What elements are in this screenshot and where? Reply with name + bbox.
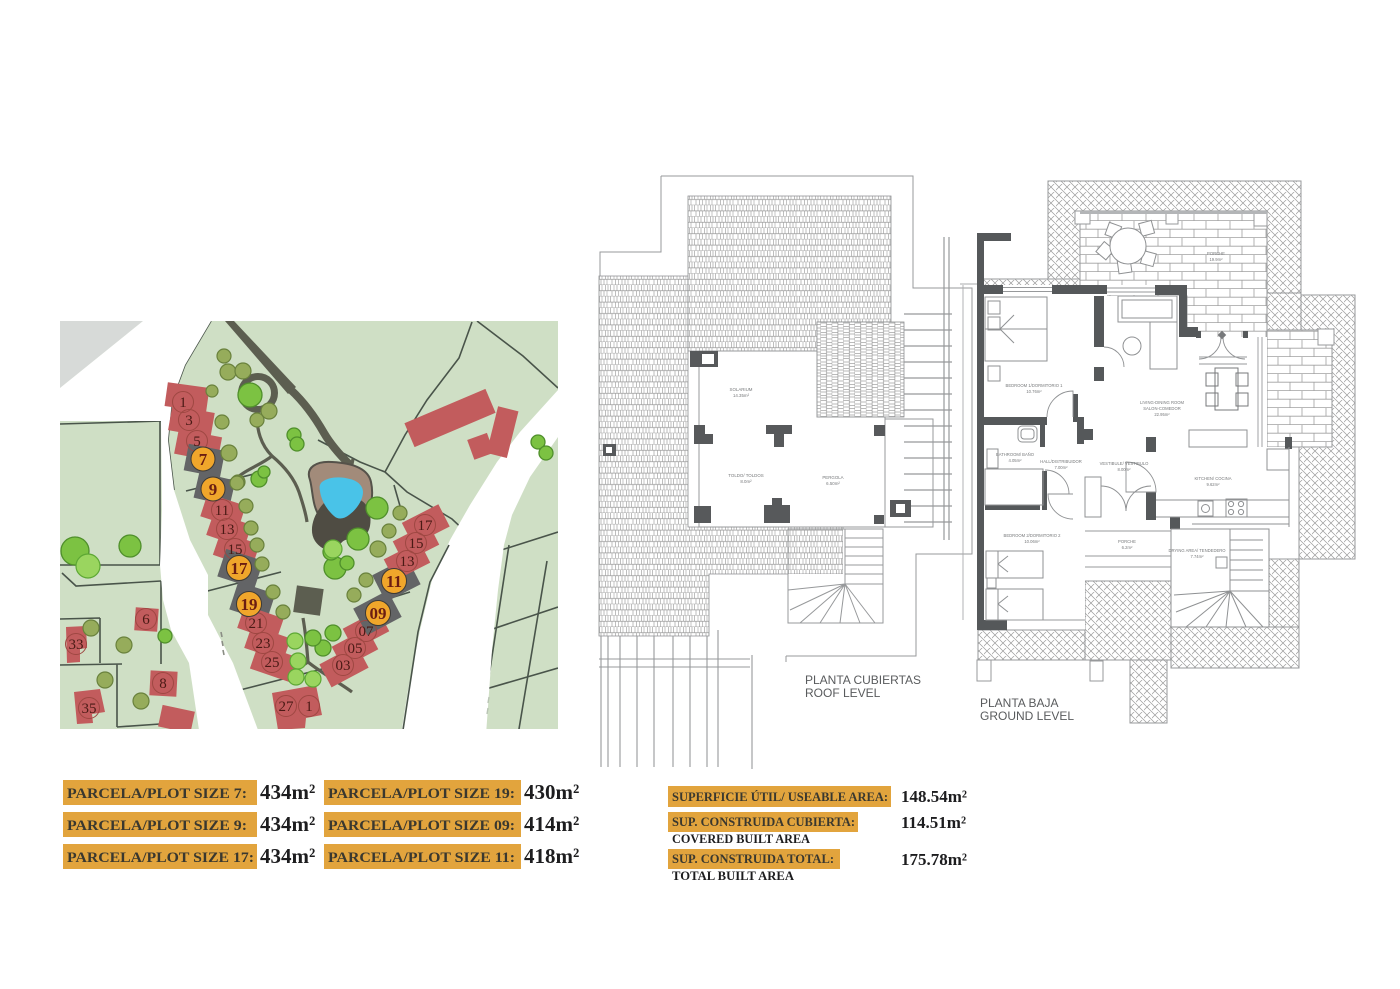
svg-text:SUP. CONSTRUIDA CUBIERTA:: SUP. CONSTRUIDA CUBIERTA: (672, 814, 855, 829)
svg-text:27: 27 (279, 699, 295, 715)
svg-text:430m²: 430m² (524, 780, 579, 804)
svg-text:PLANTA BAJA: PLANTA BAJA (980, 696, 1058, 710)
svg-text:COVERED BUILT AREA: COVERED BUILT AREA (672, 831, 811, 846)
svg-text:114.51m²: 114.51m² (901, 813, 966, 832)
svg-text:11: 11 (386, 572, 402, 591)
svg-text:33: 33 (69, 637, 84, 653)
svg-text:PLANTA CUBIERTAS: PLANTA CUBIERTAS (805, 673, 921, 687)
svg-text:9: 9 (209, 480, 218, 499)
svg-text:05: 05 (348, 641, 363, 657)
svg-text:9.62m²: 9.62m² (1206, 482, 1220, 487)
svg-text:10.06m²: 10.06m² (1024, 539, 1040, 544)
svg-text:15: 15 (409, 536, 424, 552)
svg-text:10.76m²: 10.76m² (1026, 389, 1042, 394)
svg-text:PARCELA/PLOT SIZE 11:: PARCELA/PLOT SIZE 11: (328, 850, 515, 866)
svg-text:TOLDO/ TOLDOS: TOLDO/ TOLDOS (728, 473, 763, 478)
svg-text:414m²: 414m² (524, 812, 579, 836)
svg-text:ROOF LEVEL: ROOF LEVEL (805, 686, 881, 700)
svg-text:6.2m²: 6.2m² (1122, 545, 1133, 550)
svg-text:PARCELA/PLOT SIZE 7:: PARCELA/PLOT SIZE 7: (67, 786, 247, 802)
svg-text:PORCHE: PORCHE (1207, 251, 1225, 256)
svg-text:8.00m²: 8.00m² (1117, 467, 1131, 472)
svg-text:434m²: 434m² (260, 844, 315, 868)
svg-text:SALON-COMEDOR: SALON-COMEDOR (1143, 406, 1180, 411)
svg-text:07: 07 (359, 624, 375, 640)
svg-text:SUPERFICIE ÚTIL/ USEABLE AREA:: SUPERFICIE ÚTIL/ USEABLE AREA: (672, 789, 888, 804)
svg-text:6.50m²: 6.50m² (826, 481, 840, 486)
svg-text:418m²: 418m² (524, 844, 579, 868)
svg-text:PARCELA/PLOT SIZE 9:: PARCELA/PLOT SIZE 9: (67, 818, 247, 834)
svg-text:PARCELA/PLOT SIZE 09:: PARCELA/PLOT SIZE 09: (328, 818, 515, 834)
svg-text:LIVING-DINING ROOM: LIVING-DINING ROOM (1140, 400, 1184, 405)
svg-text:175.78m²: 175.78m² (901, 850, 967, 869)
svg-text:19: 19 (241, 595, 258, 614)
svg-text:BEDROOM 1/DORMITORIO 1: BEDROOM 1/DORMITORIO 1 (1006, 383, 1064, 388)
svg-text:7.74m²: 7.74m² (1190, 554, 1204, 559)
svg-text:11: 11 (215, 503, 229, 519)
svg-text:22.95m²: 22.95m² (1154, 412, 1170, 417)
svg-text:VESTIBULE/ VESTIBULO: VESTIBULE/ VESTIBULO (1100, 461, 1150, 466)
svg-text:6: 6 (142, 612, 150, 628)
svg-text:7.00m²: 7.00m² (1054, 465, 1068, 470)
svg-text:4.05m²: 4.05m² (1008, 458, 1022, 463)
svg-text:BATHROOM/ BAÑO: BATHROOM/ BAÑO (996, 452, 1035, 457)
svg-text:SUP. CONSTRUIDA TOTAL:: SUP. CONSTRUIDA TOTAL: (672, 851, 834, 866)
svg-text:25: 25 (265, 655, 280, 671)
svg-text:17: 17 (418, 518, 434, 534)
svg-text:434m²: 434m² (260, 812, 315, 836)
svg-text:PARCELA/PLOT SIZE 19:: PARCELA/PLOT SIZE 19: (328, 786, 515, 802)
svg-text:PORCHE: PORCHE (1118, 539, 1136, 544)
svg-text:1: 1 (305, 699, 313, 715)
svg-text:SOLARIUM: SOLARIUM (730, 387, 753, 392)
svg-text:17: 17 (231, 559, 249, 578)
svg-text:7: 7 (199, 450, 208, 469)
svg-text:BEDROOM 2/DORMITORIO 2: BEDROOM 2/DORMITORIO 2 (1004, 533, 1062, 538)
svg-text:09: 09 (370, 604, 387, 623)
svg-text:03: 03 (336, 658, 351, 674)
svg-text:23: 23 (256, 636, 271, 652)
svg-text:8: 8 (159, 676, 167, 692)
svg-text:TOTAL BUILT AREA: TOTAL BUILT AREA (672, 868, 795, 883)
svg-text:14.35m²: 14.35m² (733, 393, 750, 398)
svg-text:13: 13 (400, 554, 415, 570)
svg-text:13: 13 (220, 522, 235, 538)
svg-text:148.54m²: 148.54m² (901, 787, 967, 806)
svg-text:3: 3 (185, 413, 193, 429)
svg-text:19.9m²: 19.9m² (1209, 257, 1223, 262)
svg-text:8.0m²: 8.0m² (740, 479, 752, 484)
svg-text:35: 35 (82, 701, 97, 717)
svg-text:KITCHEN/ COCINA: KITCHEN/ COCINA (1195, 476, 1232, 481)
svg-text:1: 1 (179, 395, 187, 411)
svg-text:HALL/DISTRIBUIDOR: HALL/DISTRIBUIDOR (1040, 459, 1082, 464)
svg-text:PERGOLA: PERGOLA (822, 475, 843, 480)
svg-text:GROUND LEVEL: GROUND LEVEL (980, 709, 1074, 723)
svg-text:21: 21 (249, 616, 264, 632)
svg-text:434m²: 434m² (260, 780, 315, 804)
svg-text:DRYING AREA/ TENDEDERO: DRYING AREA/ TENDEDERO (1168, 548, 1226, 553)
svg-text:PARCELA/PLOT SIZE 17:: PARCELA/PLOT SIZE 17: (67, 850, 254, 866)
